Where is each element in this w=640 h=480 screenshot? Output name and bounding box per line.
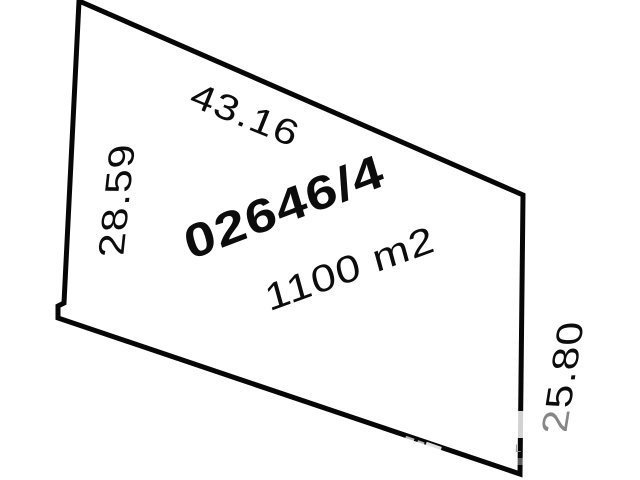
watermark-remnant-letter: L	[515, 443, 521, 455]
cadastral-parcel-map: 43.16 28.59 25.80 02646/4 1100 m2 L	[0, 0, 640, 480]
